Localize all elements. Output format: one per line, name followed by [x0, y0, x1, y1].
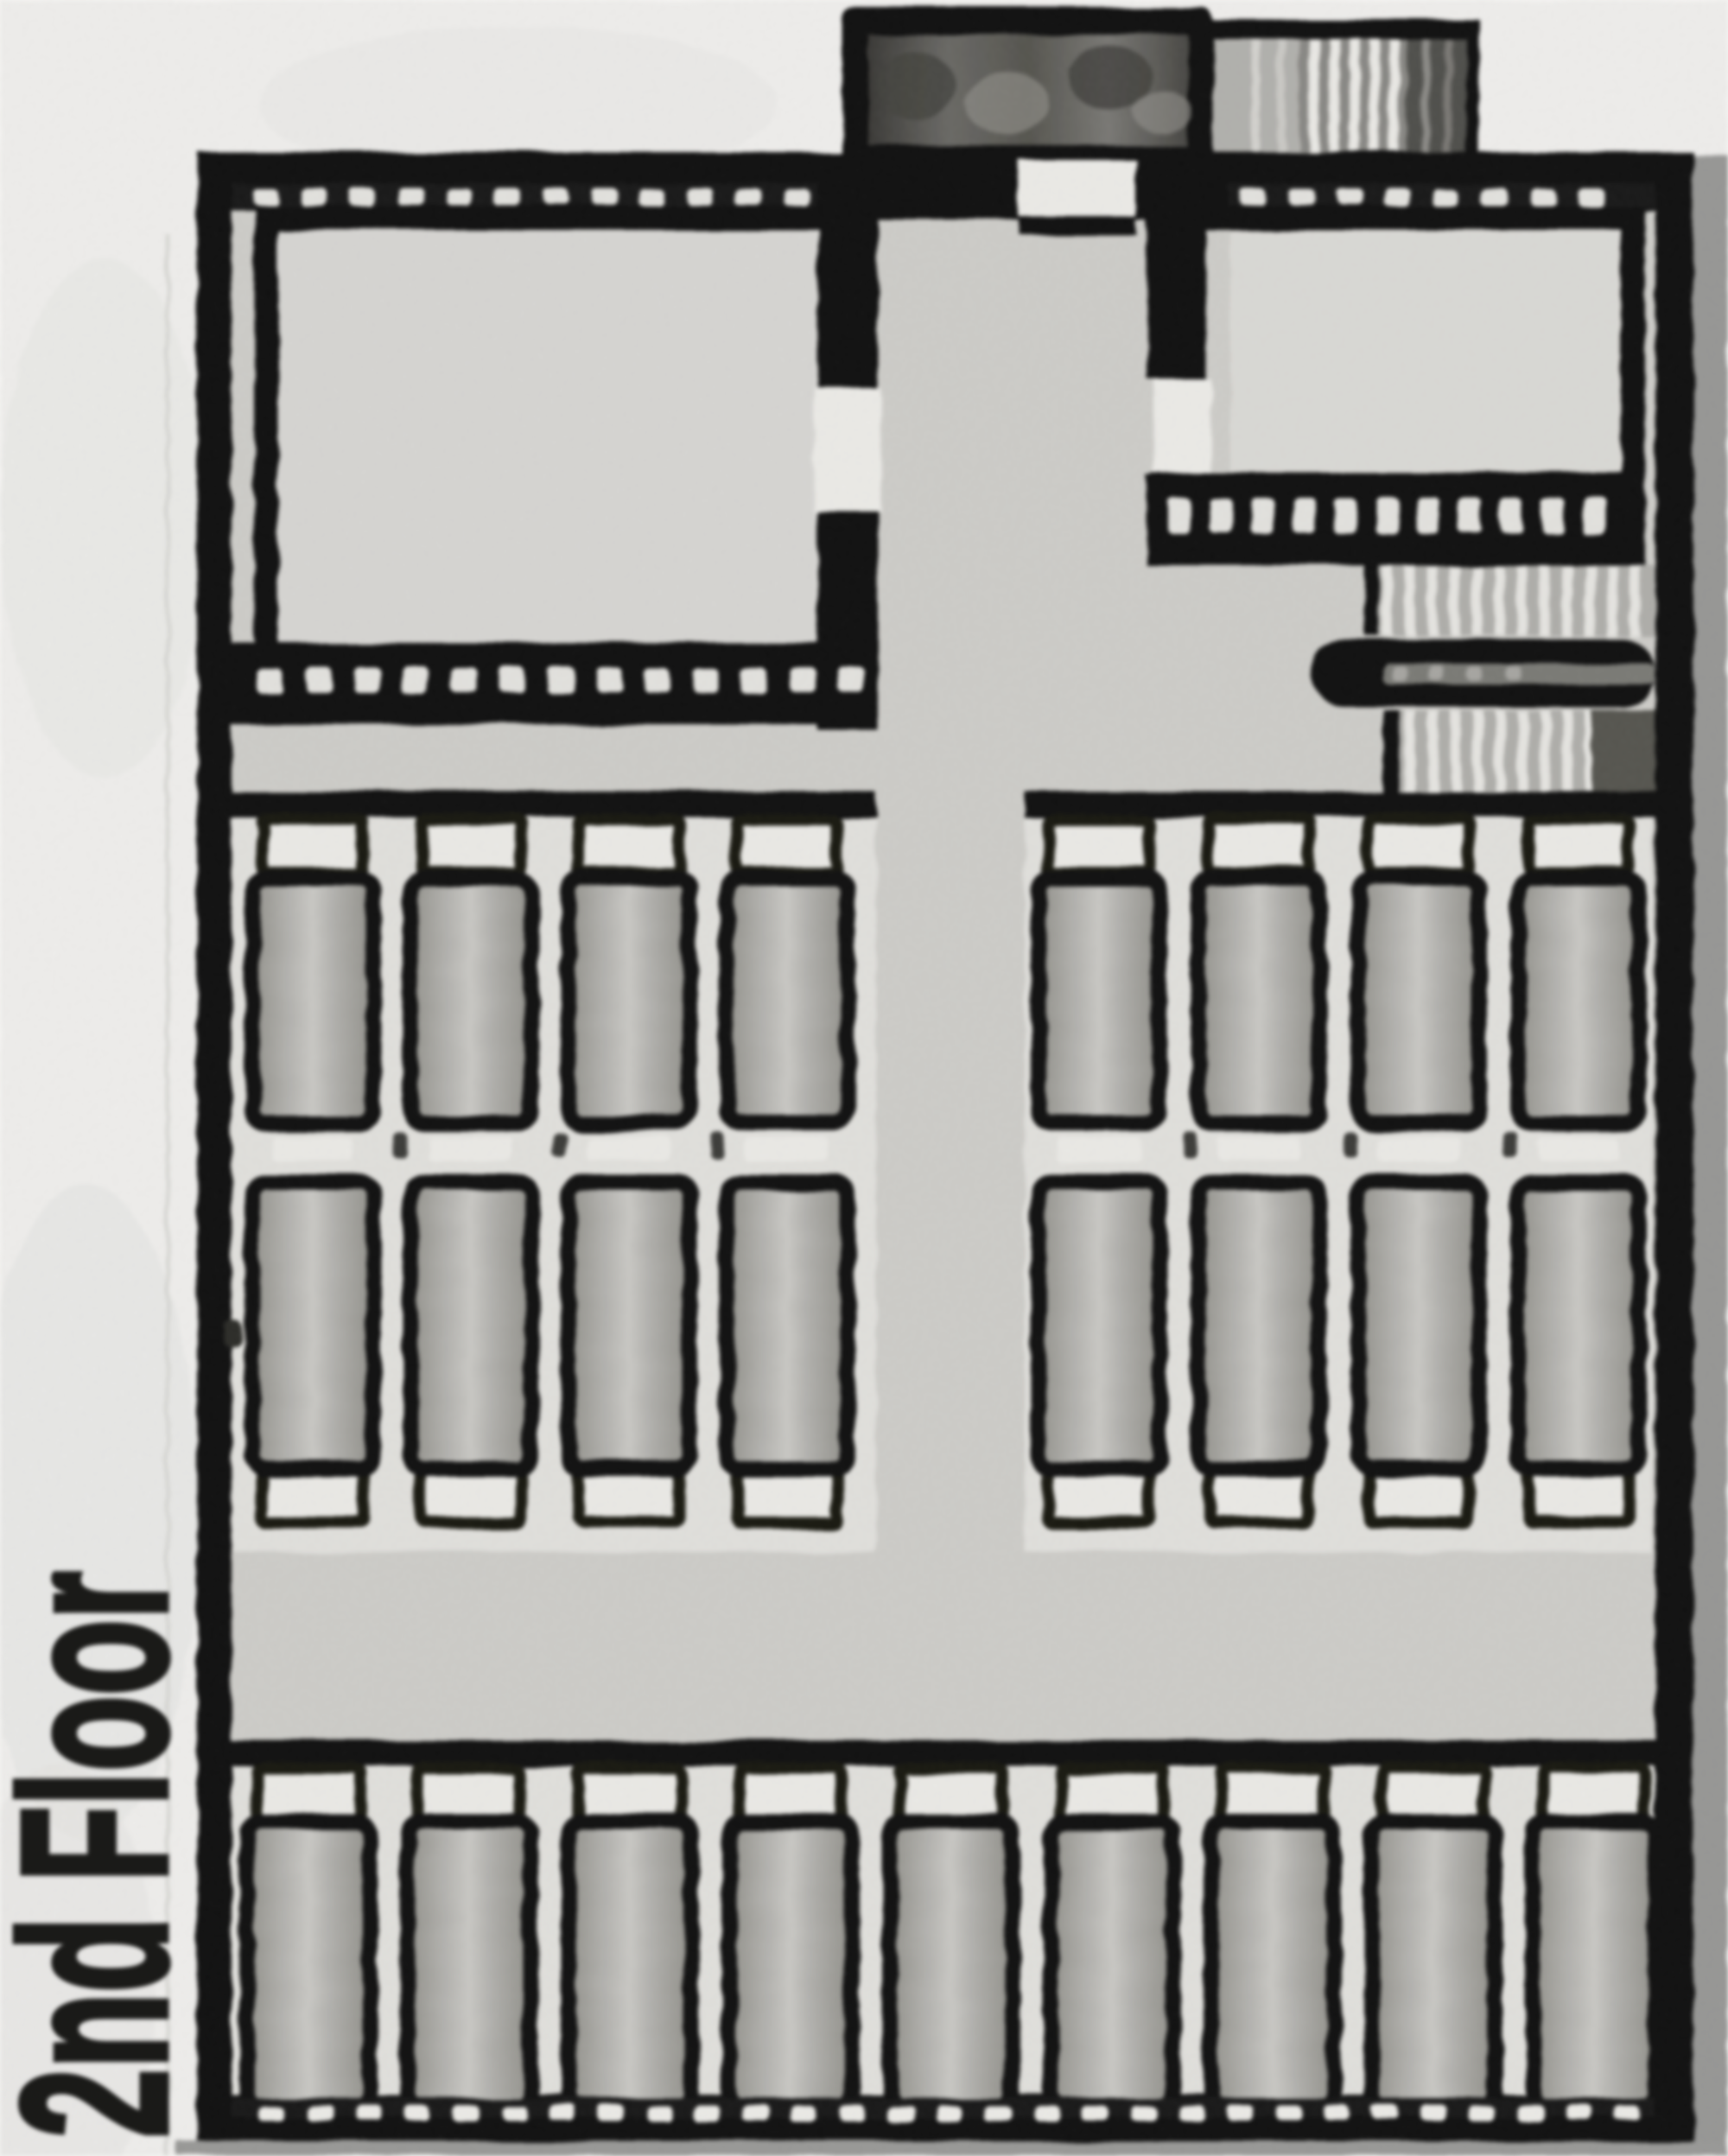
svg-text:2nd Floor: 2nd Floor [0, 1571, 210, 2138]
